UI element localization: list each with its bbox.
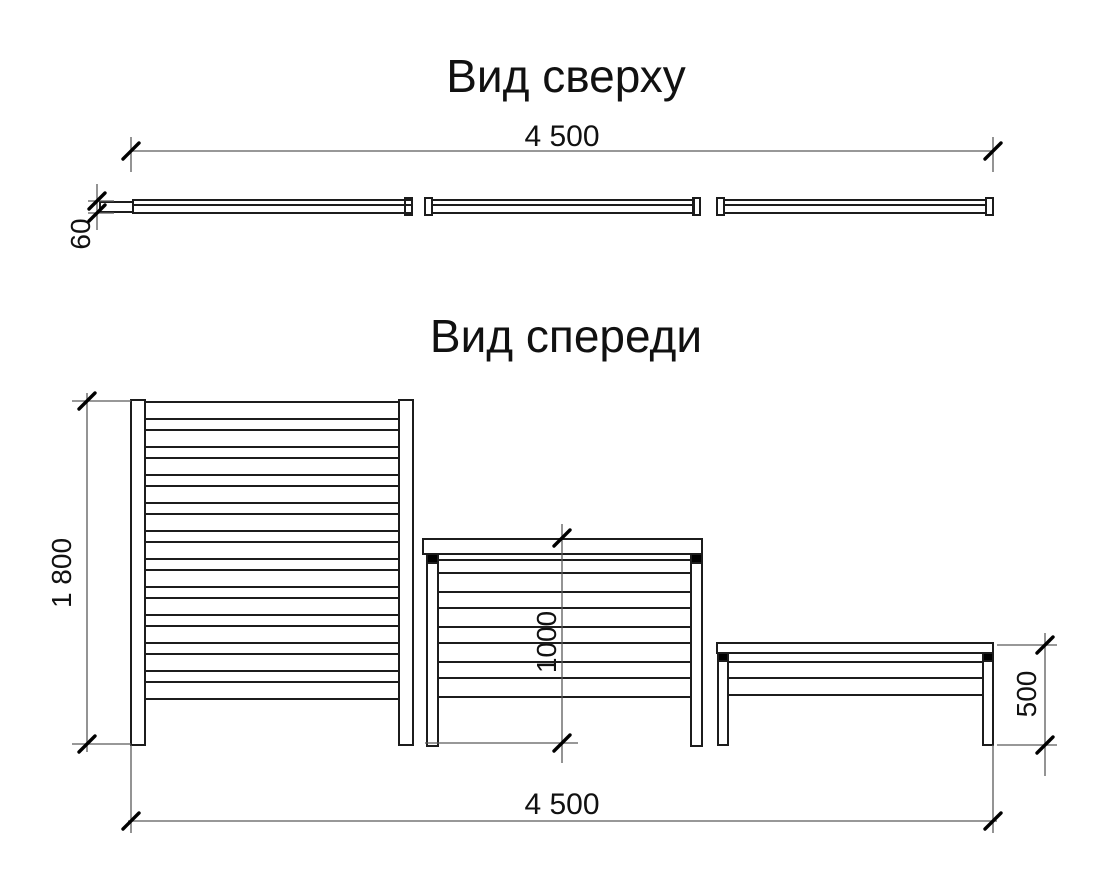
- post-bracket: [691, 554, 702, 563]
- post-bracket: [718, 653, 728, 661]
- bottom-width-dimension-label: 4 500: [524, 788, 599, 821]
- thickness-dimension-label: 60: [65, 218, 96, 249]
- post: [131, 400, 145, 745]
- drawing-canvas: Вид сверху 4 500 60 Вид спереди 1 800 10…: [0, 0, 1110, 879]
- post: [399, 400, 413, 745]
- bar-end-cap: [717, 198, 724, 215]
- fence-panel-tall: [131, 400, 413, 745]
- bar-end-cap: [425, 198, 432, 215]
- post-bracket: [427, 554, 438, 563]
- fence-panel-small: [717, 643, 993, 745]
- post: [691, 554, 702, 746]
- fence-technical-drawing: Вид сверху 4 500 60 Вид спереди 1 800 10…: [0, 0, 1110, 879]
- panel1-height-dimension-label: 1 800: [46, 538, 77, 608]
- post-bracket: [983, 653, 993, 661]
- top-view: Вид сверху 4 500 60: [65, 50, 993, 250]
- top-view-bars: [100, 198, 993, 215]
- cap-rail: [717, 643, 993, 653]
- top-width-dimension-label: 4 500: [524, 120, 599, 153]
- front-view: Вид спереди 1 800 1000 500 4 500: [46, 310, 1042, 821]
- bar-segment: [133, 200, 412, 213]
- front-view-title: Вид спереди: [430, 310, 702, 362]
- bar-end-cap: [986, 198, 993, 215]
- post: [718, 653, 728, 745]
- bar-segment: [724, 200, 986, 213]
- top-view-title: Вид сверху: [446, 50, 686, 102]
- bar-segment: [432, 200, 694, 213]
- panel3-height-dimension-label: 500: [1011, 671, 1042, 718]
- post: [983, 653, 993, 745]
- post: [427, 554, 438, 746]
